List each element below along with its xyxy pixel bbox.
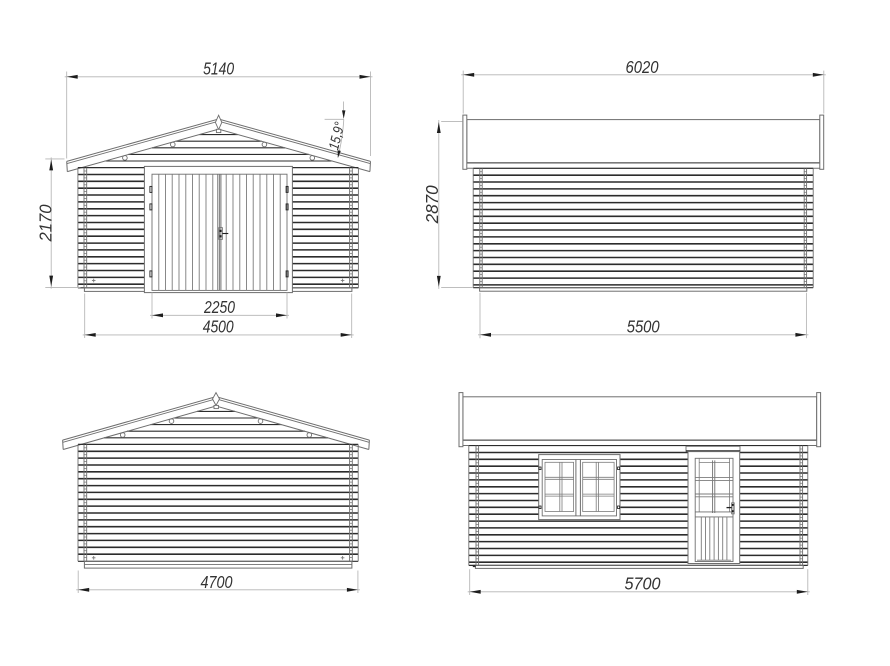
- svg-text:5700: 5700: [625, 573, 661, 593]
- svg-text:4500: 4500: [203, 317, 234, 337]
- svg-text:5500: 5500: [627, 317, 660, 337]
- svg-text:2250: 2250: [203, 297, 235, 317]
- svg-text:2870: 2870: [422, 185, 442, 224]
- svg-text:6020: 6020: [626, 57, 659, 77]
- svg-text:2170: 2170: [35, 204, 55, 242]
- svg-text:5140: 5140: [203, 59, 234, 79]
- svg-text:4700: 4700: [201, 572, 233, 592]
